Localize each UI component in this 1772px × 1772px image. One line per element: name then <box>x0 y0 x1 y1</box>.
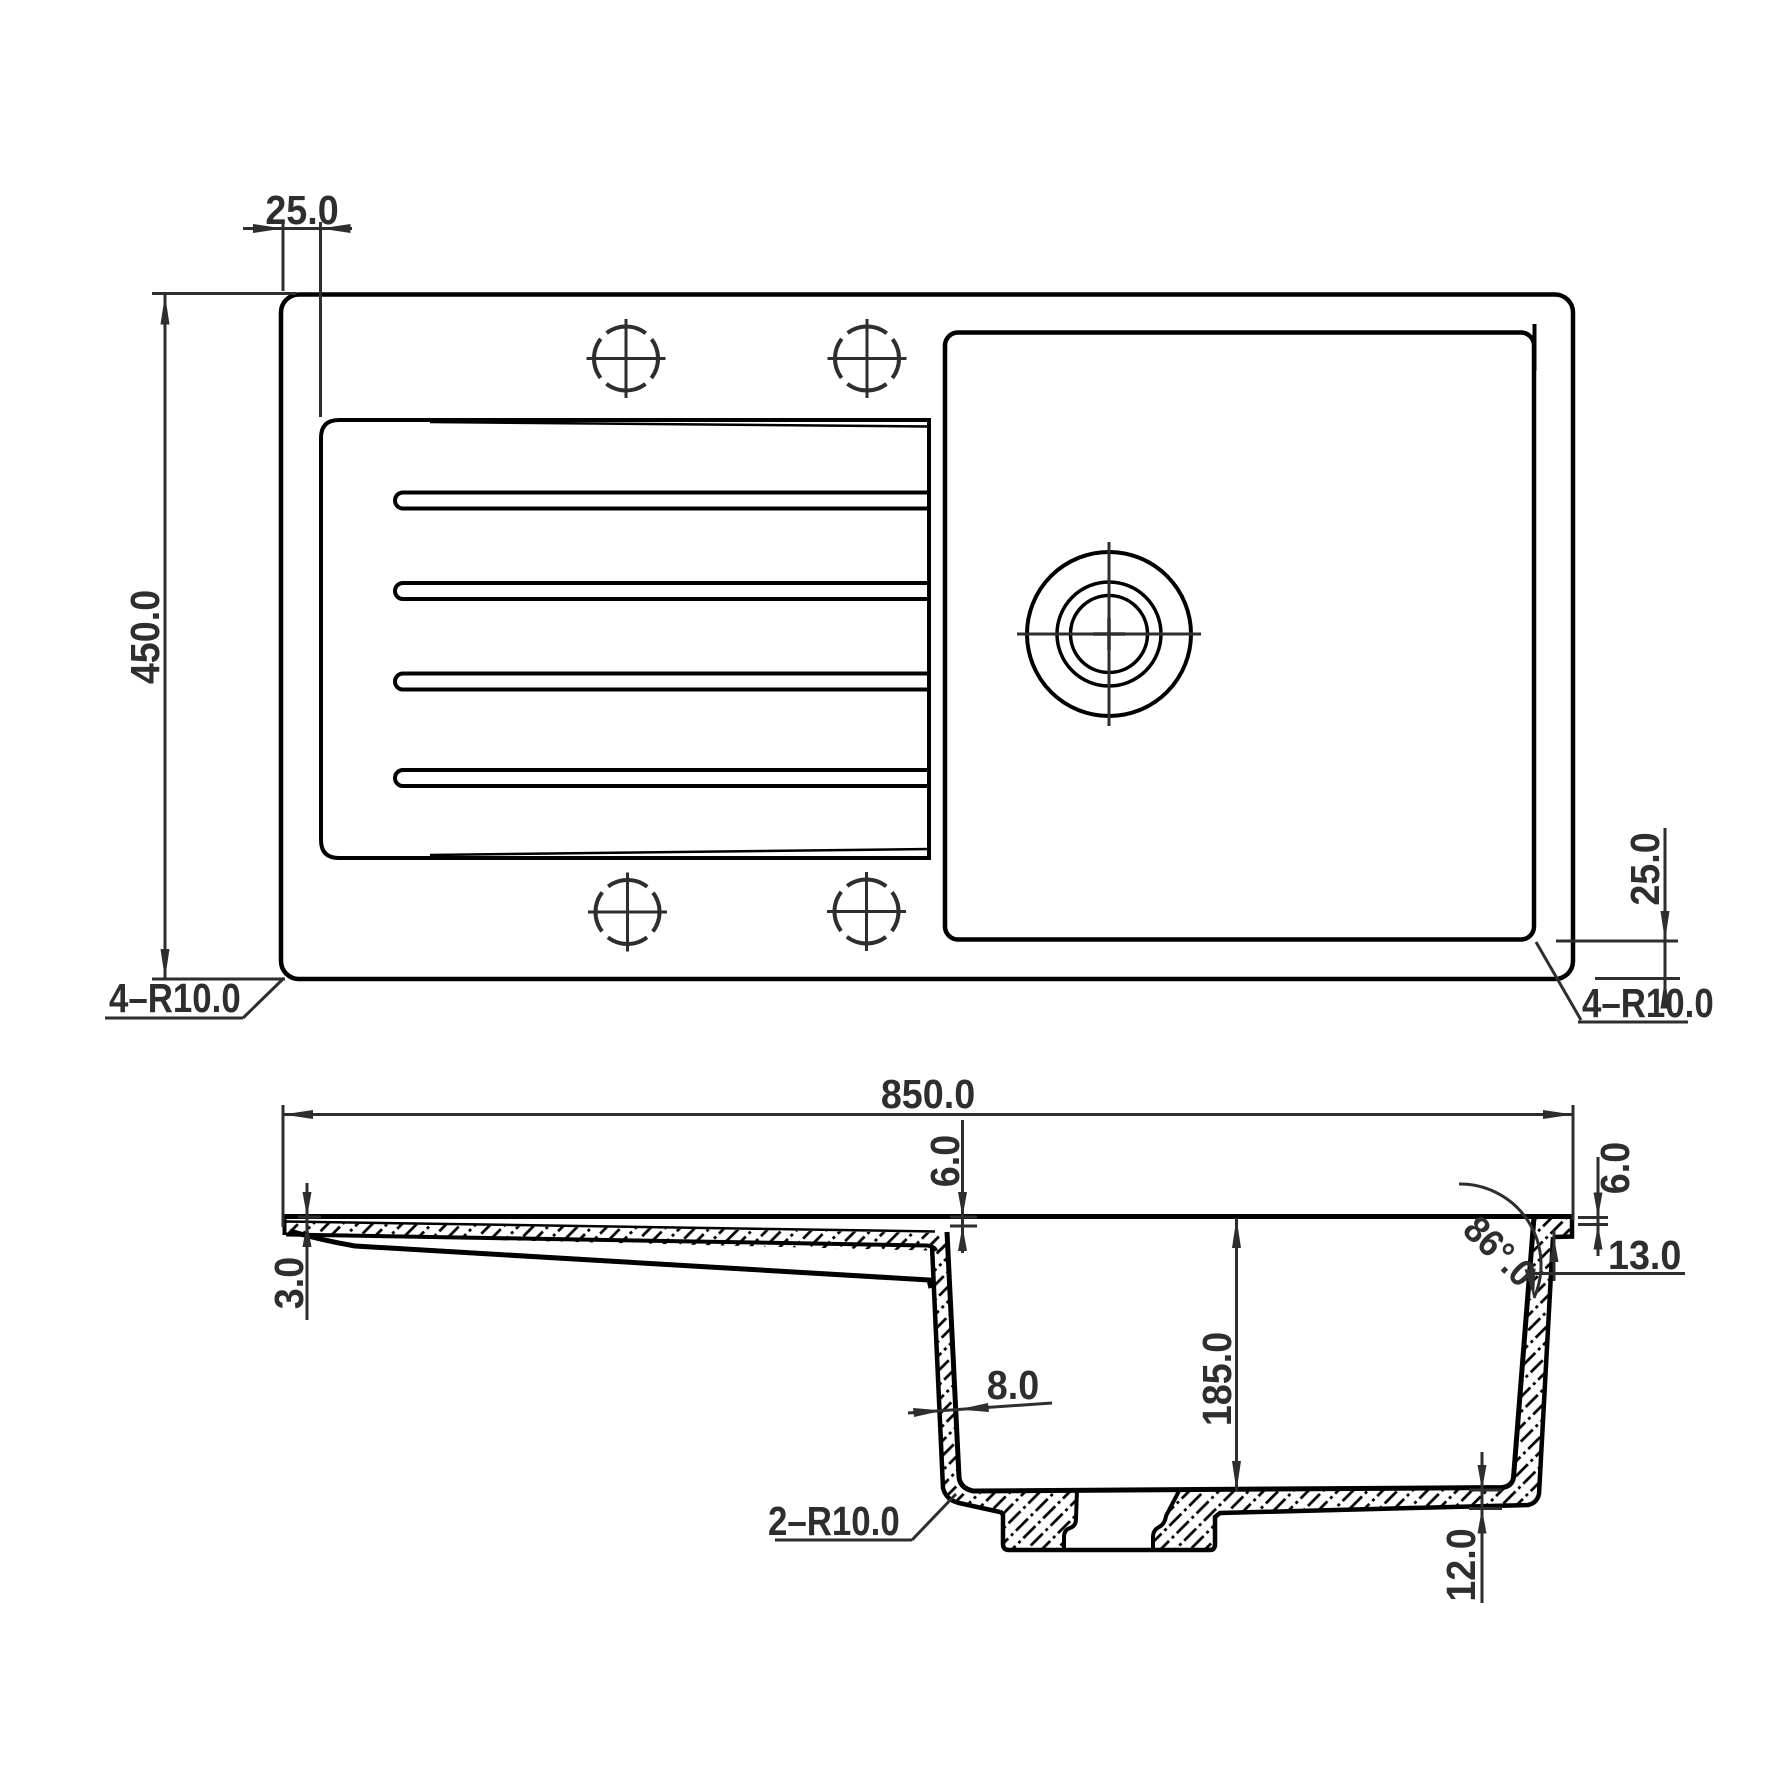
svg-text:185.0: 185.0 <box>1195 1332 1241 1426</box>
svg-text:4–R10.0: 4–R10.0 <box>109 976 241 1021</box>
svg-text:25.0: 25.0 <box>1623 832 1669 905</box>
svg-text:3.0: 3.0 <box>267 1257 313 1309</box>
svg-text:450.0: 450.0 <box>123 590 169 684</box>
svg-text:13.0: 13.0 <box>1608 1233 1681 1279</box>
svg-text:6.0: 6.0 <box>1593 1142 1639 1194</box>
svg-text:12.0: 12.0 <box>1439 1528 1485 1601</box>
svg-text:6.0: 6.0 <box>923 1135 969 1187</box>
svg-text:850.0: 850.0 <box>881 1072 975 1118</box>
svg-text:2–R10.0: 2–R10.0 <box>768 1499 900 1544</box>
svg-text:8.0: 8.0 <box>987 1363 1039 1409</box>
svg-text:25.0: 25.0 <box>265 188 338 234</box>
svg-text:4–R10.0: 4–R10.0 <box>1582 981 1714 1026</box>
